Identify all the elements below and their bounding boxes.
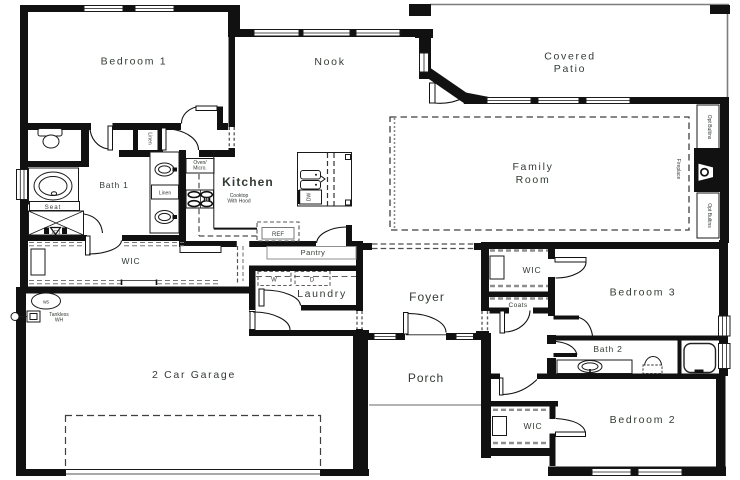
svg-text:Patio: Patio — [554, 63, 586, 75]
svg-text:Fireplace: Fireplace — [675, 159, 681, 180]
svg-text:Bath 2: Bath 2 — [593, 344, 622, 354]
svg-text:Bedroom 3: Bedroom 3 — [610, 287, 677, 299]
svg-text:Pantry: Pantry — [301, 248, 326, 257]
svg-text:Kitchen: Kitchen — [222, 175, 274, 189]
svg-text:Laundry: Laundry — [297, 288, 347, 300]
svg-text:Room: Room — [516, 174, 551, 186]
svg-text:WIC: WIC — [523, 265, 542, 275]
svg-text:Micro.: Micro. — [193, 166, 207, 172]
svg-text:Linen: Linen — [159, 191, 171, 197]
svg-text:WIC: WIC — [524, 421, 543, 431]
svg-text:Bedroom 2: Bedroom 2 — [610, 414, 677, 426]
svg-text:ws: ws — [43, 300, 50, 306]
svg-text:W: W — [271, 278, 277, 284]
svg-text:D: D — [310, 278, 315, 284]
svg-text:Seat: Seat — [45, 204, 62, 211]
svg-text:Family: Family — [512, 161, 553, 173]
svg-text:WH: WH — [55, 318, 64, 324]
svg-text:Covered: Covered — [544, 51, 596, 63]
svg-text:Opt Bultins: Opt Bultins — [706, 203, 712, 228]
svg-text:Nook: Nook — [314, 56, 345, 68]
svg-text:Opt Bultins: Opt Bultins — [706, 115, 712, 140]
svg-text:2 Car Garage: 2 Car Garage — [152, 369, 236, 381]
svg-text:Coats: Coats — [509, 302, 528, 309]
svg-text:Linen: Linen — [147, 132, 153, 144]
svg-text:DW: DW — [307, 193, 313, 202]
svg-text:WIC: WIC — [122, 256, 141, 266]
svg-text:REF: REF — [272, 232, 284, 238]
svg-text:Foyer: Foyer — [409, 290, 445, 304]
svg-text:1▽1: 1▽1 — [51, 230, 61, 236]
svg-text:Bedroom 1: Bedroom 1 — [101, 56, 168, 68]
svg-text:With Hood: With Hood — [227, 199, 251, 205]
svg-text:Bath 1: Bath 1 — [99, 180, 128, 190]
svg-text:Porch: Porch — [408, 371, 444, 385]
